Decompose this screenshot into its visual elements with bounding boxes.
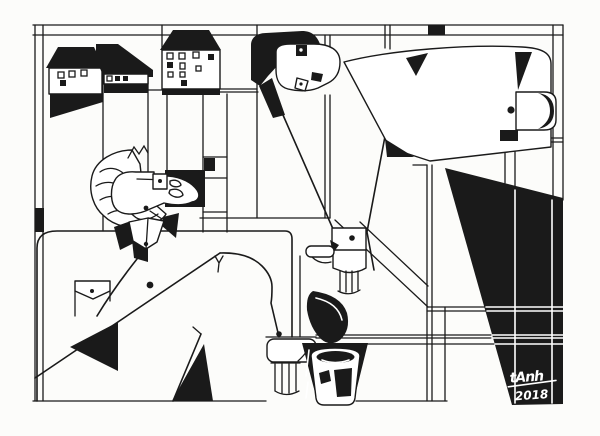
artwork-canvas: tAnh 2018 — [0, 0, 600, 436]
house-1 — [46, 47, 104, 118]
beauty-mark — [144, 206, 149, 211]
liquid-block — [334, 368, 352, 397]
house-3 — [160, 30, 221, 95]
black-column: tAnh 2018 — [445, 168, 563, 405]
nipple-dot — [147, 282, 154, 289]
hip-curve — [220, 253, 279, 337]
window — [123, 76, 128, 81]
finger-lines — [275, 364, 296, 393]
sill-black-square — [500, 130, 518, 141]
house-2-base — [104, 84, 148, 93]
house-1-shadow-wedge — [50, 94, 103, 118]
house-1-roof — [46, 47, 104, 68]
window — [115, 76, 120, 81]
pocket-button — [90, 289, 94, 293]
man-hand — [306, 228, 366, 294]
finger-arc — [275, 391, 299, 395]
collar-wing-right — [162, 213, 179, 238]
house-3-roof — [160, 30, 221, 50]
finger-arc — [338, 290, 360, 294]
house-2 — [96, 44, 153, 93]
signature-year: 2018 — [514, 387, 548, 403]
border-black-cell — [35, 208, 44, 232]
glass-liquid-rim — [317, 351, 355, 363]
woman-figure — [35, 146, 348, 401]
man-palm — [333, 249, 366, 273]
man-face — [276, 44, 340, 91]
window — [208, 54, 214, 60]
navel-mark — [215, 256, 223, 272]
top-band-black-square — [428, 25, 445, 35]
window-dot — [507, 106, 514, 113]
drink-glass — [302, 343, 368, 405]
man-chin-dot — [299, 82, 302, 85]
background-tile — [204, 158, 215, 171]
houses-row — [46, 30, 221, 118]
window — [60, 80, 66, 86]
black-trapezoid — [445, 168, 563, 405]
pointing-finger — [306, 246, 334, 257]
couch-shadow-triangle — [70, 322, 118, 371]
thumb-line — [312, 257, 331, 263]
collar-button — [144, 242, 148, 246]
finger-lines — [340, 271, 358, 292]
knee-notch — [193, 327, 201, 334]
woman-eye-dot — [158, 179, 162, 183]
window — [181, 80, 187, 86]
woman-body — [35, 253, 279, 401]
window — [167, 62, 173, 68]
man-sleeve-line — [367, 131, 386, 270]
house-3-base — [162, 89, 220, 95]
cuff-button — [349, 235, 355, 241]
man-eye-highlight — [299, 48, 302, 51]
house-2-roof — [96, 44, 153, 77]
artwork-page: tAnh 2018 — [0, 0, 600, 436]
